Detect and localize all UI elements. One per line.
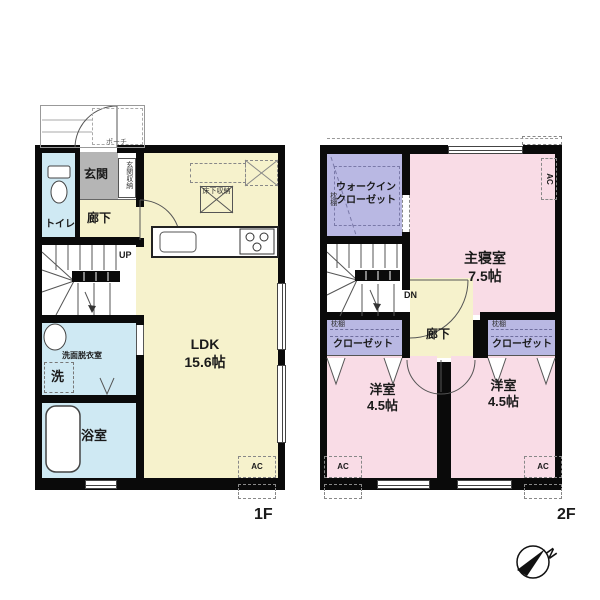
wall xyxy=(136,355,144,478)
closet-front-line xyxy=(488,355,555,356)
refrigerator-space xyxy=(245,160,278,186)
ac-label: AC xyxy=(544,173,554,185)
wall xyxy=(402,320,410,358)
wall xyxy=(35,315,140,323)
door-washroom xyxy=(136,325,144,355)
window-ldk-right-2 xyxy=(277,365,286,443)
washer-label: 洗 xyxy=(51,369,64,385)
window-ldk-right-1 xyxy=(277,283,286,350)
wall xyxy=(136,238,144,247)
floor-1-label: 1F xyxy=(254,505,273,525)
window-sash-line xyxy=(449,150,522,151)
porch-label: ポーチ xyxy=(106,139,127,148)
ac-outdoor-2f-right xyxy=(524,484,562,499)
window-sash-line xyxy=(458,485,511,486)
closet-shelf-dash xyxy=(330,336,399,337)
floor-2-label: 2F xyxy=(557,505,576,525)
master-size: 7.5帖 xyxy=(430,268,540,286)
wall xyxy=(473,320,488,358)
wic-shelf-label: 枕棚 xyxy=(328,192,337,206)
western-right-size: 4.5帖 xyxy=(461,394,546,410)
compass: N xyxy=(517,545,560,578)
window-bathroom xyxy=(85,480,117,489)
ac-label: AC xyxy=(537,462,549,472)
wall xyxy=(35,237,140,245)
kitchen-cupboard-dash xyxy=(190,163,246,183)
ac-unit-master: AC xyxy=(541,158,557,200)
window-sash-line xyxy=(282,284,283,349)
floor-plan-canvas: N 玄関収納 AC AC AC AC ポーチ 玄関 廊下 トイレ UP LDK … xyxy=(0,0,600,600)
genkan-step-line xyxy=(80,199,136,200)
ac-label: AC xyxy=(251,462,263,472)
floor-storage-label: 床下収納 xyxy=(199,188,234,197)
wic-line1: ウォークイン xyxy=(330,182,402,195)
window-sash-line xyxy=(282,366,283,442)
western-left-label: 洋室 4.5帖 xyxy=(340,382,425,415)
ac-outdoor-2f-left xyxy=(324,484,362,499)
closet-left-shelf-label: 枕棚 xyxy=(331,321,345,330)
window-sash-line xyxy=(378,485,429,486)
western-left-size: 4.5帖 xyxy=(340,398,425,414)
wall xyxy=(402,145,410,195)
room-stairs-2f xyxy=(327,244,402,318)
wall xyxy=(320,236,410,244)
wall xyxy=(35,395,140,403)
closet-shelf-dash xyxy=(491,336,552,337)
ac-unit-2f-right: AC xyxy=(524,456,562,478)
ldk-name: LDK xyxy=(160,336,250,354)
dn-label: DN xyxy=(404,290,417,301)
window-western-left xyxy=(377,480,430,489)
room-hallway-2f xyxy=(410,278,473,358)
shoe-cabinet-label: 玄関収納 xyxy=(124,161,133,189)
wall xyxy=(136,152,144,207)
wic-line2: クローゼット xyxy=(330,195,402,208)
up-label: UP xyxy=(119,250,132,261)
wall xyxy=(402,244,410,290)
window-sash-line xyxy=(86,485,116,486)
shoe-cabinet: 玄関収納 xyxy=(118,158,136,198)
closet-right-shelf-label: 枕棚 xyxy=(492,321,506,330)
window-master-top xyxy=(448,146,523,154)
hallway-2f-label: 廊下 xyxy=(426,327,450,342)
wall xyxy=(75,152,80,240)
wall xyxy=(320,312,410,320)
western-right-label: 洋室 4.5帖 xyxy=(461,378,546,411)
ldk-size: 15.6帖 xyxy=(160,354,250,372)
toilet-label: トイレ xyxy=(45,219,75,232)
hallway-1f-label: 廊下 xyxy=(87,211,111,226)
window-western-right xyxy=(457,480,512,489)
ac-unit-1f: AC xyxy=(238,456,276,478)
wall xyxy=(480,312,562,320)
western-right-name: 洋室 xyxy=(461,378,546,394)
closet-left-label: クローゼット xyxy=(333,339,393,352)
genkan-label: 玄関 xyxy=(84,167,108,182)
master-name: 主寝室 xyxy=(430,250,540,268)
washroom-label: 洗面脱衣室 xyxy=(62,351,102,361)
wall xyxy=(437,362,451,478)
ac-label: AC xyxy=(337,462,349,472)
wic-label: ウォークイン クローゼット xyxy=(330,182,402,207)
closet-right-label: クローゼット xyxy=(492,339,552,352)
compass-north-label: N xyxy=(543,545,561,561)
wall xyxy=(136,315,144,325)
master-bedroom-label: 主寝室 7.5帖 xyxy=(430,250,540,285)
ac-outdoor-1f xyxy=(238,484,276,499)
door-wic xyxy=(402,195,410,232)
eaves-dash-line xyxy=(327,138,558,139)
wall xyxy=(320,145,448,154)
ldk-label: LDK 15.6帖 xyxy=(160,336,250,371)
ac-unit-2f-left: AC xyxy=(324,456,362,478)
closet-front-line xyxy=(327,355,402,356)
western-left-name: 洋室 xyxy=(340,382,425,398)
bathroom-label: 浴室 xyxy=(81,428,107,444)
